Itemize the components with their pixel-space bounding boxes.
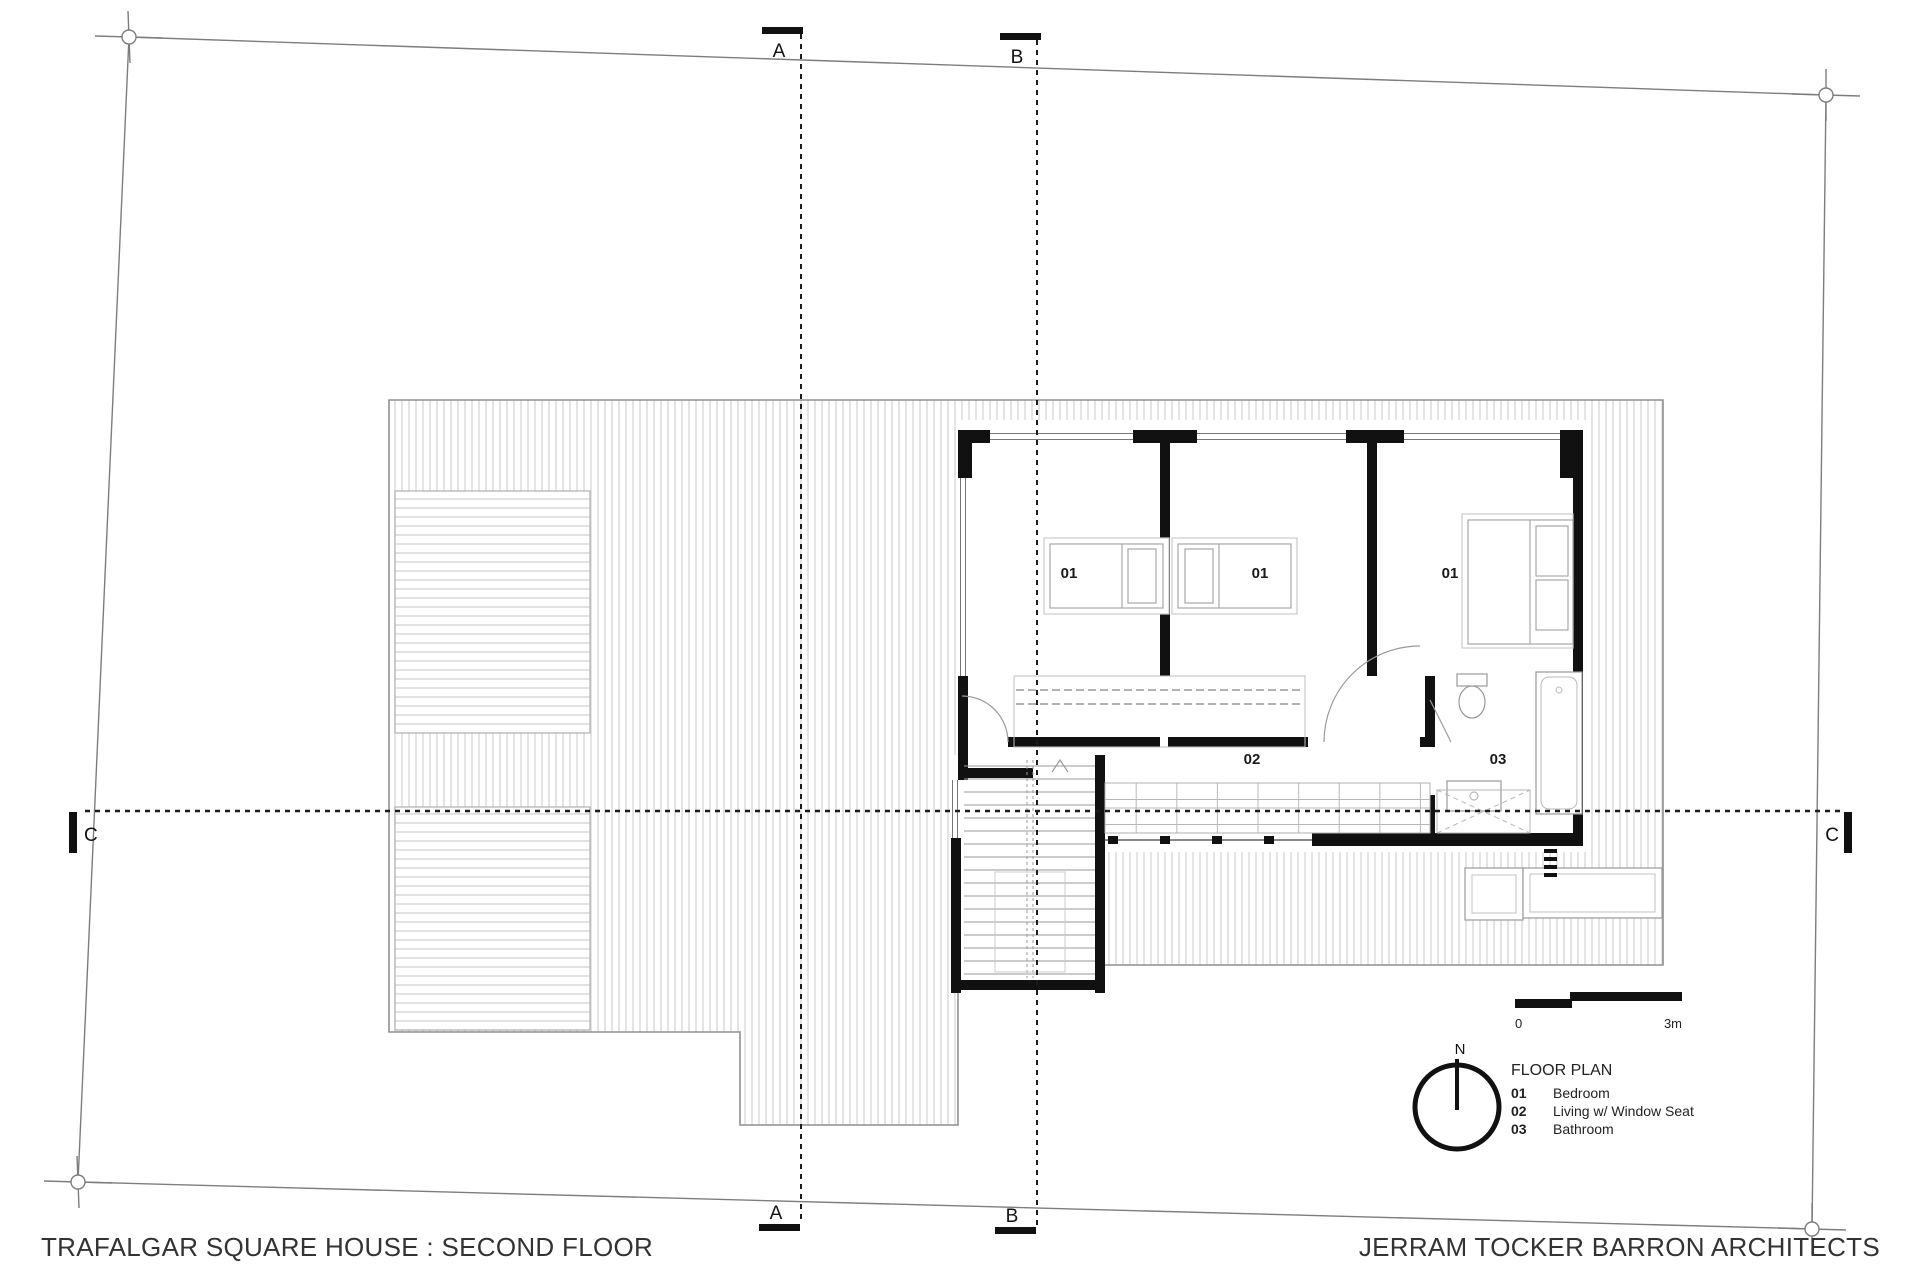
legend-label-bathroom: Bathroom bbox=[1553, 1121, 1614, 1137]
section-label-c-right: C bbox=[1825, 825, 1839, 846]
room-label-bedroom-middle: 01 bbox=[1252, 565, 1269, 582]
scale-end-label: 3m bbox=[1664, 1016, 1682, 1031]
section-label-a-top: A bbox=[773, 41, 786, 62]
north-arrow: N bbox=[1415, 1041, 1499, 1149]
scale-start-label: 0 bbox=[1515, 1016, 1522, 1031]
section-marker-b-top: B bbox=[1000, 33, 1041, 68]
deck-planters bbox=[1465, 868, 1662, 920]
legend: FLOOR PLAN 01 Bedroom 02 Living w/ Windo… bbox=[1511, 1062, 1694, 1137]
room-label-bedroom-left: 01 bbox=[1061, 565, 1078, 582]
louvre-panel-lower bbox=[395, 807, 590, 1030]
room-label-living: 02 bbox=[1244, 751, 1261, 768]
legend-code-02: 02 bbox=[1511, 1103, 1527, 1119]
drawing-title: TRAFALGAR SQUARE HOUSE : SECOND FLOOR bbox=[41, 1232, 653, 1262]
legend-item-bathroom: 03 Bathroom bbox=[1511, 1121, 1614, 1137]
section-marker-b-bottom: B bbox=[995, 1206, 1036, 1234]
staircase bbox=[964, 760, 1095, 978]
legend-label-living: Living w/ Window Seat bbox=[1553, 1103, 1694, 1119]
bed-single-middle bbox=[1172, 538, 1297, 614]
room-label-bathroom: 03 bbox=[1490, 751, 1507, 768]
floor-plan-drawing: A B A B C C 01 01 01 02 03 bbox=[0, 0, 1920, 1280]
section-label-a-bottom: A bbox=[770, 1203, 783, 1224]
legend-item-bedroom: 01 Bedroom bbox=[1511, 1085, 1610, 1101]
section-label-b-bottom: B bbox=[1006, 1206, 1019, 1227]
vanity bbox=[1447, 781, 1501, 811]
firm-title: JERRAM TOCKER BARRON ARCHITECTS bbox=[1359, 1232, 1880, 1262]
toilet bbox=[1457, 674, 1487, 718]
north-label: N bbox=[1455, 1041, 1466, 1058]
window-bedroom-right bbox=[1404, 430, 1560, 443]
legend-label-bedroom: Bedroom bbox=[1553, 1085, 1610, 1101]
room-label-bedroom-right: 01 bbox=[1442, 565, 1459, 582]
legend-code-01: 01 bbox=[1511, 1085, 1527, 1101]
bathtub bbox=[1536, 672, 1582, 814]
boundary-corner-marker-top-left bbox=[95, 11, 163, 63]
section-label-b-top: B bbox=[1011, 47, 1024, 68]
boundary-corner-marker-top-right bbox=[1792, 69, 1860, 121]
window-bedroom-left bbox=[990, 430, 1133, 443]
legend-title: FLOOR PLAN bbox=[1511, 1062, 1612, 1079]
legend-code-03: 03 bbox=[1511, 1121, 1527, 1137]
bed-double-right bbox=[1462, 514, 1573, 648]
window-bedroom-middle bbox=[1197, 430, 1346, 443]
boundary-corner-marker-bottom-left bbox=[44, 1156, 112, 1208]
legend-item-living: 02 Living w/ Window Seat bbox=[1511, 1103, 1694, 1119]
section-marker-c-right: C bbox=[1825, 812, 1852, 853]
section-label-c-left: C bbox=[84, 825, 98, 846]
louvre-panel-upper bbox=[395, 491, 590, 733]
section-marker-a-top: A bbox=[762, 27, 803, 62]
scale-bar: 0 3m bbox=[1515, 992, 1682, 1031]
section-marker-a-bottom: A bbox=[759, 1203, 800, 1231]
